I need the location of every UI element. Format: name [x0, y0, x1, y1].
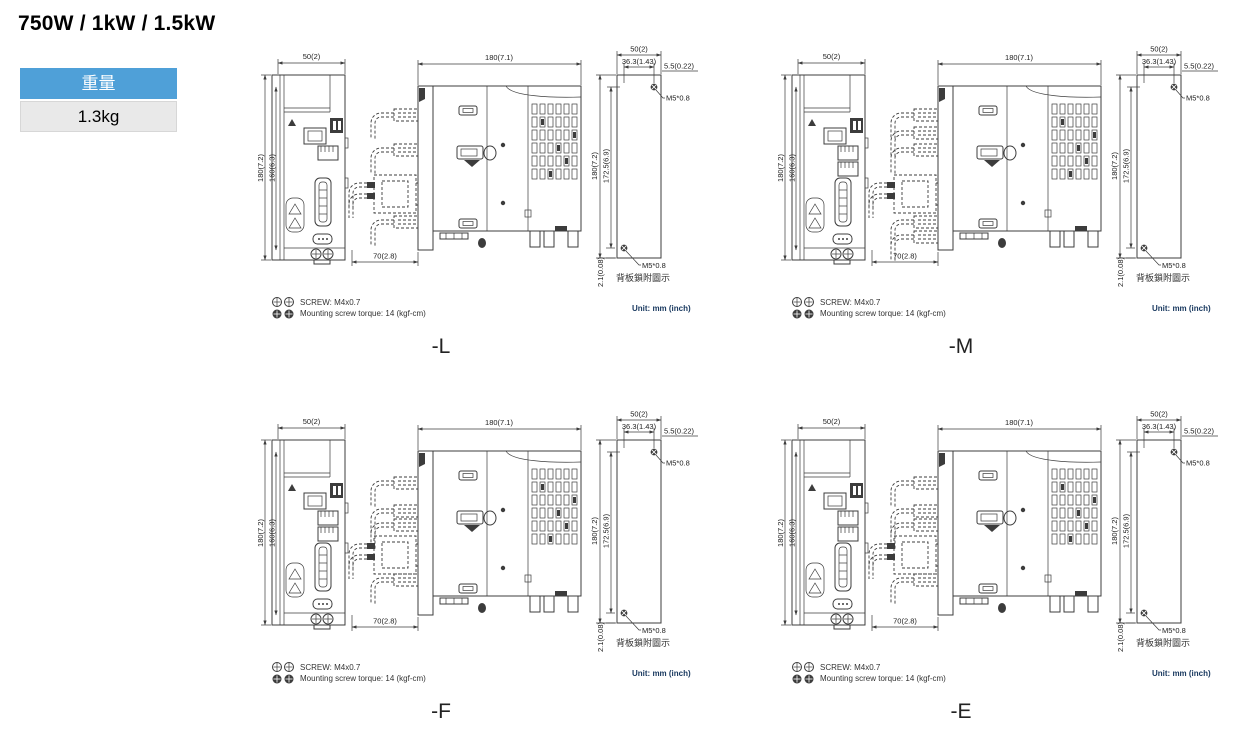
side-swoosh — [506, 86, 581, 97]
weight-value: 1.3kg — [20, 101, 177, 132]
front-height-dim: 180(7.2) — [258, 519, 265, 547]
rear-view: 50(2) 36.3(1.43) 5.5(0.22) M5*0.8 M5*0.8… — [1110, 45, 1218, 288]
top-connector-icon — [850, 118, 863, 133]
cable-bundle — [869, 109, 938, 261]
rear-screw-span-dim: 36.3(1.43) — [622, 422, 657, 431]
mounting-feet — [1045, 210, 1098, 247]
screw-callout-bottom: M5*0.8 — [642, 626, 666, 635]
rear-edge-offset-dim: 5.5(0.22) — [664, 427, 695, 436]
torque-text: Mounting screw torque: 14 (kgf-cm) — [820, 674, 946, 683]
bottom-tab — [314, 260, 330, 264]
mounting-screw-top — [651, 449, 658, 456]
screw-spec-text: SCREW: M4x0.7 — [820, 298, 881, 307]
dsub-connector — [313, 599, 332, 609]
screw-spec-text: SCREW: M4x0.7 — [300, 663, 361, 672]
connector-depth-dim: 70(2.8) — [373, 617, 397, 626]
screw-note: SCREW: M4x0.7 Mounting screw torque: 14 … — [273, 298, 427, 319]
rj45-port-2 — [838, 527, 858, 541]
din-clip-bottom — [979, 219, 997, 228]
front-view: 50(2) 180(7.2) 160(6.3) — [258, 417, 348, 629]
warning-label-icon — [806, 198, 824, 232]
rear-height-dim: 180(7.2) — [590, 152, 599, 180]
rear-width-dim: 50(2) — [1150, 45, 1168, 54]
screw-head-icon — [793, 298, 814, 307]
mounting-screw-bottom — [621, 245, 628, 252]
din-clip-bottom — [459, 584, 477, 593]
warning-label-icon — [286, 563, 304, 597]
rear-screw-span-dim: 36.3(1.43) — [1142, 422, 1177, 431]
front-height-dim: 180(7.2) — [778, 519, 785, 547]
variant-label: -F — [431, 700, 451, 723]
screw-head-dark-icon — [793, 310, 814, 319]
side-view: 180(7.1) — [869, 418, 1101, 631]
rear-width-dim: 50(2) — [1150, 410, 1168, 419]
drawing-quadrant: 50(2) 180(7.2) 160(6.3) — [258, 38, 728, 363]
display-window — [304, 493, 326, 509]
side-view: 180(7.1) — [349, 418, 581, 631]
front-marker-triangle — [288, 484, 296, 491]
rear-screw-span-dim: 36.3(1.43) — [622, 57, 657, 66]
cable-bundle — [349, 109, 418, 246]
dimension-drawing: 50(2) 180(7.2) 160(6.3) — [258, 38, 728, 363]
din-clip-bottom — [459, 219, 477, 228]
display-window — [304, 128, 326, 144]
rear-edge-offset-dim: 5.5(0.22) — [1184, 427, 1215, 436]
screw-head-icon — [273, 663, 294, 672]
top-connector-icon — [330, 118, 343, 133]
rj45-port-1 — [838, 146, 858, 160]
front-width-dim: 50(2) — [823, 417, 841, 426]
rear-height-dim: 180(7.2) — [1110, 517, 1119, 545]
io-connector — [835, 543, 851, 591]
rear-bottom-offset-dim: 2.1(0.08) — [596, 256, 605, 287]
bottom-tab — [834, 625, 850, 629]
vent-slots — [532, 469, 577, 544]
thumbscrew-knob — [484, 511, 496, 525]
din-clip-top — [459, 106, 477, 115]
front-marker-triangle — [288, 119, 296, 126]
mounting-feet — [525, 210, 578, 247]
thumbscrew-knob — [1004, 146, 1016, 160]
screw-head-dark-icon — [273, 675, 294, 684]
display-window — [824, 128, 846, 144]
front-view: 50(2) 180(7.2) 160(6.3) — [778, 52, 868, 264]
io-connector — [835, 178, 851, 226]
rear-view: 50(2) 36.3(1.43) 5.5(0.22) M5*0.8 M5*0.8… — [1110, 410, 1218, 653]
rear-caption: 背板鎖附圖示 — [616, 637, 670, 648]
side-view: 180(7.1) — [869, 53, 1101, 266]
screw-head-icon — [793, 663, 814, 672]
variant-label: -L — [432, 335, 451, 358]
screw-note: SCREW: M4x0.7 Mounting screw torque: 14 … — [793, 298, 947, 319]
unit-note: Unit: mm (inch) — [632, 669, 691, 678]
drawing-quadrant: 50(2) 180(7.2) 160(6.3) — [258, 403, 728, 728]
power-terminals — [831, 614, 853, 624]
cable-bundle — [349, 477, 418, 604]
drawing-quadrant: 50(2) 180(7.2) 160(6.3) — [778, 38, 1242, 363]
top-connector-icon — [850, 483, 863, 498]
dsub-connector — [833, 599, 852, 609]
rear-view: 50(2) 36.3(1.43) 5.5(0.22) M5*0.8 M5*0.8… — [590, 410, 698, 653]
din-clip-top — [459, 471, 477, 480]
din-clip-bottom — [979, 584, 997, 593]
rear-bottom-offset-dim: 2.1(0.08) — [1116, 256, 1125, 287]
screw-callout-bottom: M5*0.8 — [1162, 626, 1186, 635]
weight-table-header: 重量 — [20, 68, 177, 99]
screw-callout-bottom: M5*0.8 — [1162, 261, 1186, 270]
page-title: 750W / 1kW / 1.5kW — [18, 12, 215, 36]
side-depth-dim: 180(7.1) — [485, 53, 513, 62]
bottom-tab — [314, 625, 330, 629]
torque-text: Mounting screw torque: 14 (kgf-cm) — [300, 309, 426, 318]
torque-text: Mounting screw torque: 14 (kgf-cm) — [820, 309, 946, 318]
bottom-screw — [478, 603, 486, 613]
vent-slots — [1052, 104, 1097, 179]
connector-depth-dim: 70(2.8) — [893, 617, 917, 626]
rj45-port-2 — [838, 162, 858, 176]
display-window — [824, 493, 846, 509]
side-view: 180(7.1) — [349, 53, 581, 266]
connector-depth-dim: 70(2.8) — [373, 252, 397, 261]
rear-screw-height-dim: 172.5(6.9) — [1122, 513, 1131, 548]
din-clip-top — [979, 106, 997, 115]
rear-width-dim: 50(2) — [630, 410, 648, 419]
unit-note: Unit: mm (inch) — [1152, 669, 1211, 678]
rear-height-dim: 180(7.2) — [1110, 152, 1119, 180]
mounting-feet — [1045, 575, 1098, 612]
rear-screw-height-dim: 172.5(6.9) — [1122, 148, 1131, 183]
front-width-dim: 50(2) — [823, 52, 841, 61]
unit-note: Unit: mm (inch) — [632, 304, 691, 313]
mounting-screw-top — [1171, 449, 1178, 456]
side-depth-dim: 180(7.1) — [1005, 418, 1033, 427]
io-connector — [315, 543, 331, 591]
rear-screw-height-dim: 172.5(6.9) — [602, 148, 611, 183]
front-height-dim: 180(7.2) — [258, 154, 265, 182]
thumbscrew-knob — [1004, 511, 1016, 525]
mounting-screw-bottom — [621, 610, 628, 617]
bottom-screw — [478, 238, 486, 248]
rear-caption: 背板鎖附圖示 — [1136, 637, 1190, 648]
bottom-screw — [998, 603, 1006, 613]
rear-view: 50(2) 36.3(1.43) 5.5(0.22) M5*0.8 M5*0.8… — [590, 45, 698, 288]
dimension-drawing: 50(2) 180(7.2) 160(6.3) — [778, 38, 1242, 363]
side-top-flag — [419, 88, 425, 102]
vent-slots — [1052, 469, 1097, 544]
screw-callout-top: M5*0.8 — [1186, 94, 1210, 103]
rear-caption: 背板鎖附圖示 — [1136, 272, 1190, 283]
screw-spec-text: SCREW: M4x0.7 — [820, 663, 881, 672]
variant-label: -M — [949, 335, 974, 358]
power-terminals — [311, 614, 333, 624]
mid-connector — [977, 511, 1003, 532]
top-connector-icon — [330, 483, 343, 498]
rj45-port-1 — [838, 511, 858, 525]
rear-height-dim: 180(7.2) — [590, 517, 599, 545]
screw-note: SCREW: M4x0.7 Mounting screw torque: 14 … — [273, 663, 427, 684]
din-clip-top — [979, 471, 997, 480]
bottom-screw — [998, 238, 1006, 248]
page: { "page": { "title": "750W / 1kW / 1.5kW… — [0, 0, 1242, 726]
mid-connector — [457, 511, 483, 532]
power-terminals — [311, 249, 333, 259]
screw-head-dark-icon — [273, 310, 294, 319]
screw-callout-top: M5*0.8 — [666, 94, 690, 103]
unit-note: Unit: mm (inch) — [1152, 304, 1211, 313]
mid-connector — [457, 146, 483, 167]
side-top-flag — [939, 453, 945, 467]
bottom-tab — [834, 260, 850, 264]
rear-edge-offset-dim: 5.5(0.22) — [664, 62, 695, 71]
rear-width-dim: 50(2) — [630, 45, 648, 54]
side-swoosh — [1026, 86, 1101, 97]
mounting-screw-top — [1171, 84, 1178, 91]
power-terminals — [831, 249, 853, 259]
io-connector — [315, 178, 331, 226]
rear-screw-span-dim: 36.3(1.43) — [1142, 57, 1177, 66]
cable-bundle — [869, 477, 938, 604]
torque-text: Mounting screw torque: 14 (kgf-cm) — [300, 674, 426, 683]
screw-callout-top: M5*0.8 — [1186, 459, 1210, 468]
mounting-screw-bottom — [1141, 610, 1148, 617]
mid-connector — [977, 146, 1003, 167]
screw-callout-top: M5*0.8 — [666, 459, 690, 468]
mounting-screw-bottom — [1141, 245, 1148, 252]
rj45-port-1 — [318, 511, 338, 525]
rj45-port-1 — [318, 146, 338, 160]
variant-label: -E — [951, 700, 972, 723]
screw-callout-bottom: M5*0.8 — [642, 261, 666, 270]
screw-head-icon — [273, 298, 294, 307]
screw-spec-text: SCREW: M4x0.7 — [300, 298, 361, 307]
rear-screw-height-dim: 172.5(6.9) — [602, 513, 611, 548]
thumbscrew-knob — [484, 146, 496, 160]
front-width-dim: 50(2) — [303, 52, 321, 61]
mounting-feet — [525, 575, 578, 612]
screw-head-dark-icon — [793, 675, 814, 684]
side-swoosh — [1026, 451, 1101, 462]
side-top-flag — [419, 453, 425, 467]
rear-bottom-offset-dim: 2.1(0.08) — [596, 621, 605, 652]
front-marker-triangle — [808, 484, 816, 491]
drawing-quadrant: 50(2) 180(7.2) 160(6.3) — [778, 403, 1242, 728]
rj45-port-2 — [318, 527, 338, 541]
front-view: 50(2) 180(7.2) 160(6.3) — [778, 417, 868, 629]
side-depth-dim: 180(7.1) — [485, 418, 513, 427]
rear-bottom-offset-dim: 2.1(0.08) — [1116, 621, 1125, 652]
dimension-drawing: 50(2) 180(7.2) 160(6.3) — [778, 403, 1242, 728]
side-top-flag — [939, 88, 945, 102]
side-swoosh — [506, 451, 581, 462]
front-width-dim: 50(2) — [303, 417, 321, 426]
weight-table: 重量 1.3kg — [20, 68, 177, 132]
front-marker-triangle — [808, 119, 816, 126]
rear-edge-offset-dim: 5.5(0.22) — [1184, 62, 1215, 71]
warning-label-icon — [286, 198, 304, 232]
vent-slots — [532, 104, 577, 179]
dimension-drawing: 50(2) 180(7.2) 160(6.3) — [258, 403, 728, 728]
front-view: 50(2) 180(7.2) 160(6.3) — [258, 52, 348, 264]
dsub-connector — [313, 234, 332, 244]
screw-note: SCREW: M4x0.7 Mounting screw torque: 14 … — [793, 663, 947, 684]
dsub-connector — [833, 234, 852, 244]
front-height-dim: 180(7.2) — [778, 154, 785, 182]
side-depth-dim: 180(7.1) — [1005, 53, 1033, 62]
rear-caption: 背板鎖附圖示 — [616, 272, 670, 283]
warning-label-icon — [806, 563, 824, 597]
mounting-screw-top — [651, 84, 658, 91]
connector-depth-dim: 70(2.8) — [893, 252, 917, 261]
